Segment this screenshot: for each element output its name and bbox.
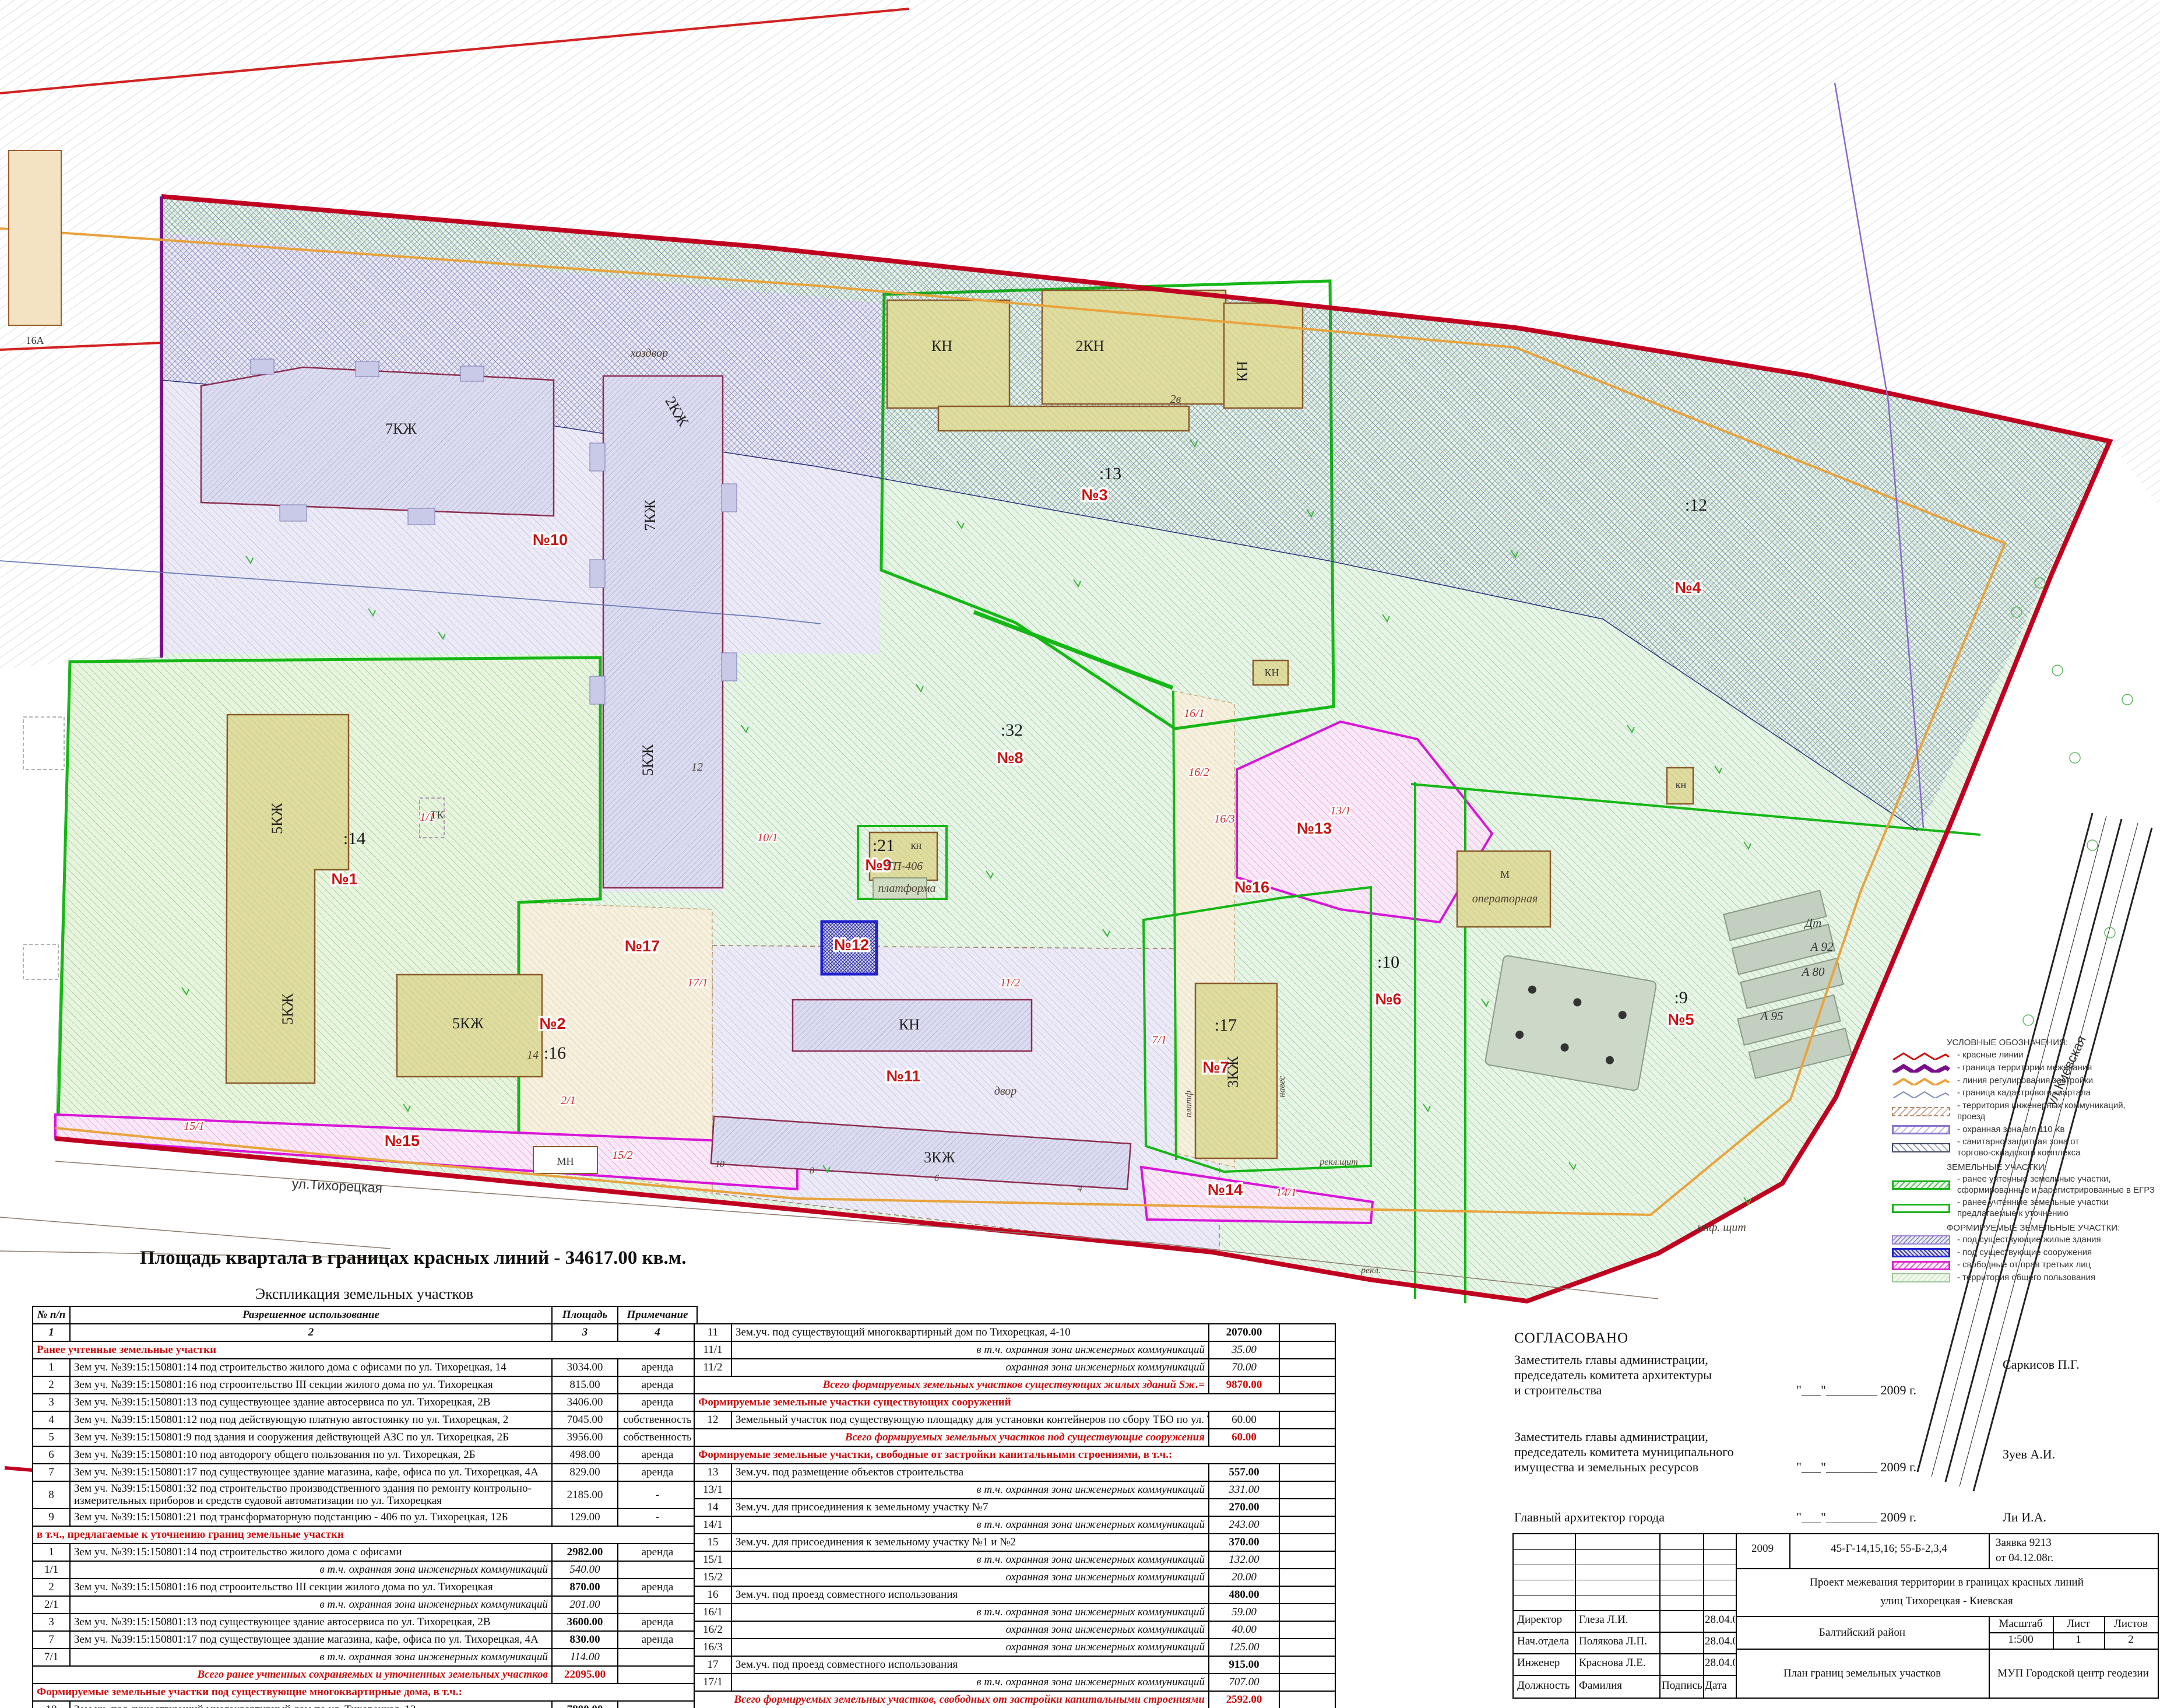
- table-cell: [1279, 1481, 1335, 1499]
- legend-item: - под существующие сооружения: [1892, 1247, 2160, 1259]
- stamp-name: Краснова Л.Е.: [1579, 1657, 1658, 1670]
- table-row: 1/1в т.ч. охранная зона инженерных комму…: [33, 1561, 697, 1579]
- legend-swatch-icon: [1892, 1143, 1950, 1152]
- table-cell: Формируемые земельные участки, свободные…: [694, 1446, 1335, 1464]
- table-cell: [1279, 1359, 1335, 1376]
- legend-label: - свободные от прав третьих лиц: [1957, 1260, 2091, 1271]
- map-label: 7КЖ: [642, 499, 659, 530]
- map-label: №3: [1081, 486, 1107, 504]
- stamp-col-label: Дата: [1705, 1679, 1735, 1692]
- map-label: 10/1: [757, 831, 778, 844]
- table-cell: [1279, 1499, 1335, 1516]
- map-label: КН: [1264, 667, 1279, 679]
- table-cell: 70.00: [1209, 1359, 1279, 1376]
- legend-label: - территория инженерных коммуникаций,про…: [1957, 1101, 2126, 1123]
- table-cell: 15: [694, 1534, 731, 1551]
- table-row: Формируемые земельные участки, свободные…: [694, 1446, 1335, 1464]
- table-cell: 480.00: [1209, 1586, 1279, 1604]
- table-cell: 9: [33, 1509, 70, 1526]
- table-cell: [618, 1561, 697, 1579]
- legend-label: - граница территории межевания: [1957, 1063, 2092, 1074]
- map-label: КН: [931, 338, 952, 354]
- table-row: 17Зем.уч. под проезд совместного использ…: [694, 1656, 1335, 1674]
- map-label: 3КЖ: [1225, 1056, 1241, 1087]
- map-label: 16А: [26, 335, 44, 346]
- map-label: №12: [834, 936, 869, 954]
- table-cell: 129.00: [552, 1509, 618, 1526]
- map-label: :14: [343, 829, 365, 848]
- table-cell: аренда: [618, 1614, 697, 1631]
- table-cell: Зем.уч. под существующий многоквартирный…: [731, 1324, 1209, 1341]
- table-cell: [1279, 1376, 1335, 1394]
- stamp-project-title: Проект межевания территории в границах к…: [1736, 1576, 2158, 1589]
- table-cell: 540.00: [552, 1561, 618, 1579]
- legend-item: - линия регулирования застройки: [1892, 1076, 2160, 1087]
- map-label: 16/3: [1214, 813, 1235, 825]
- table-cell: 331.00: [1209, 1481, 1279, 1499]
- approval-role: Главный архитектор города: [1514, 1510, 1665, 1525]
- map-label: №17: [625, 937, 660, 955]
- stamp-district: Балтийский район: [1736, 1626, 1989, 1639]
- table-row: 9Зем уч. №39:15:150801:21 под трансформа…: [33, 1509, 697, 1526]
- map-label: КН: [1234, 361, 1251, 382]
- table-cell: Формируемые земельные участки под сущест…: [33, 1684, 697, 1701]
- map-label: инф. щит: [1697, 1221, 1746, 1234]
- table-cell: 12: [694, 1411, 731, 1429]
- table-cell: 16/1: [694, 1604, 731, 1621]
- table-cell: Зем уч. №39:15:150801:12 под под действу…: [70, 1411, 552, 1429]
- table-cell: 11/1: [694, 1341, 731, 1359]
- table-cell: -: [618, 1481, 697, 1509]
- table-row: 10Зем.уч. под существующий многоквартирн…: [33, 1701, 697, 1708]
- table-cell: 557.00: [1209, 1464, 1279, 1481]
- table-row: 16Зем.уч. под проезд совместного использ…: [694, 1586, 1335, 1604]
- map-label: 5КЖ: [639, 744, 656, 775]
- table-cell: 10: [33, 1701, 70, 1708]
- stamp-org: МУП Городской центр геодезии: [1989, 1667, 2158, 1680]
- table-cell: в т.ч. охранная зона инженерных коммуник…: [731, 1516, 1209, 1534]
- table-row: Всего ранее учтенных сохраняемых и уточн…: [33, 1666, 697, 1684]
- approval-name: Саркисов П.Г.: [2003, 1357, 2080, 1372]
- legend-label: - ранее учтенные земельные участки,сформ…: [1957, 1174, 2155, 1196]
- table-cell: 243.00: [1209, 1516, 1279, 1534]
- table-cell: 870.00: [552, 1579, 618, 1596]
- stamp-date: 28.04.09: [1705, 1614, 1735, 1626]
- table-cell: 5: [33, 1429, 70, 1446]
- approval-name: Ли И.А.: [2003, 1510, 2046, 1525]
- map-label: №15: [385, 1132, 420, 1150]
- table-cell: охранная зона инженерных коммуникаций: [731, 1569, 1209, 1586]
- map-label: платф: [1184, 1091, 1194, 1117]
- table-cell: 4: [33, 1411, 70, 1429]
- map-label: ТП-406: [886, 860, 923, 873]
- table-cell: 1/1: [33, 1561, 70, 1579]
- table-cell: 17: [694, 1656, 731, 1674]
- table-row: Всего формируемых земельных участков сущ…: [694, 1376, 1335, 1394]
- table-cell: 16: [694, 1586, 731, 1604]
- approval-role: Заместитель главы администрации,: [1514, 1429, 1708, 1445]
- table-cell: 15/2: [694, 1569, 731, 1586]
- approval-role: и строительства: [1514, 1383, 1602, 1398]
- map-label: :9: [1674, 988, 1687, 1007]
- legend-swatch-icon: [1892, 1063, 1950, 1073]
- table-cell: 815.00: [552, 1376, 618, 1394]
- table-cell: [618, 1666, 697, 1684]
- quarter-area-title: Площадь квартала в границах красных лини…: [140, 1247, 723, 1269]
- table-cell: аренда: [618, 1359, 697, 1376]
- table-cell: Зем уч. №39:15:150801:17 под существующе…: [70, 1631, 552, 1649]
- table-row: 7Зем уч. №39:15:150801:17 под существующ…: [33, 1631, 697, 1649]
- legend-item: - граница кадастрового квартала: [1892, 1088, 2160, 1099]
- table-cell: 9870.00: [1209, 1376, 1279, 1394]
- table-cell: [618, 1596, 697, 1614]
- stamp-doc-title: План границ земельных участков: [1736, 1667, 1989, 1680]
- table-cell: Зем.уч. под существующий многоквартирный…: [70, 1701, 552, 1708]
- table-row: 17/1в т.ч. охранная зона инженерных комм…: [694, 1674, 1335, 1691]
- legend-label: - территория общего пользования: [1957, 1273, 2095, 1284]
- table-cell: Зем уч. №39:15:150801:10 под автодорогу …: [70, 1446, 552, 1464]
- legend-swatch-icon: [1892, 1125, 1950, 1134]
- map-label: 15/2: [612, 1149, 633, 1162]
- table-cell: 2185.00: [552, 1481, 618, 1509]
- map-label: :17: [1215, 1015, 1237, 1035]
- stamp-scale: 1:500: [1989, 1633, 2053, 1646]
- map-label: 4: [1078, 1184, 1082, 1194]
- table-row: 12Земельный участок под существующую пло…: [694, 1411, 1335, 1429]
- map-label: №14: [1208, 1181, 1243, 1199]
- map-label: №11: [886, 1067, 921, 1085]
- table-cell: 7/1: [33, 1649, 70, 1666]
- table-row: Формируемые земельные участки существующ…: [694, 1394, 1335, 1411]
- approval-title: СОГЛАСОВАНО: [1514, 1330, 1628, 1347]
- table-row: 3Зем уч. №39:15:150801:13 под существующ…: [33, 1394, 697, 1411]
- map-label: рекл.: [1360, 1266, 1381, 1275]
- stamp-sheet: 1: [2053, 1633, 2104, 1646]
- stamp-year: 2009: [1737, 1542, 1788, 1555]
- approval-date-blank: "___"________ 2009 г.: [1796, 1460, 1916, 1475]
- table-row: Всего формируемых земельных участков, св…: [694, 1691, 1335, 1708]
- map-label: хоздвор: [630, 347, 668, 360]
- table-row: 1Зем уч. №39:15:150801:14 под строительс…: [33, 1359, 697, 1376]
- legend-label: - ранее учтенные земельные участкипредла…: [1957, 1197, 2109, 1220]
- legend-swatch-icon: [1892, 1273, 1950, 1282]
- legend-section-title: ФОРМИРУЕМЫЕ ЗЕМЕЛЬНЫЕ УЧАСТКИ:: [1947, 1223, 2160, 1233]
- approval-name: Зуев А.И.: [2003, 1447, 2055, 1462]
- cadastral-plan-page: :14:16:13:32:12:17:9:10:21кн№1№2№3№4№5№6…: [0, 0, 2160, 1708]
- table-cell: Формируемые земельные участки существующ…: [694, 1394, 1335, 1411]
- table-cell: Зем.уч. для присоединения к земельному у…: [731, 1534, 1209, 1551]
- table-cell: Зем уч. №39:15:150801:14 под строительст…: [70, 1359, 552, 1376]
- approval-date-blank: "___"________ 2009 г.: [1796, 1383, 1916, 1398]
- table-cell: [618, 1701, 697, 1708]
- table-row: 2/1в т.ч. охранная зона инженерных комму…: [33, 1596, 697, 1614]
- stamp-role: Нач.отдела: [1517, 1635, 1573, 1648]
- title-block: 2009 45-Г-14,15,16; 55-Б-2,3,4 Заявка 92…: [1512, 1533, 2159, 1699]
- legend-item: - территория инженерных коммуникаций,про…: [1892, 1101, 2160, 1123]
- table-cell: аренда: [618, 1394, 697, 1411]
- table-cell: [1279, 1621, 1335, 1639]
- legend-swatch-icon: [1892, 1261, 1950, 1270]
- table-cell: [1279, 1341, 1335, 1359]
- legend-swatch-icon: [1892, 1248, 1950, 1257]
- stamp-scale-label: Масштаб: [1989, 1618, 2053, 1630]
- legend-item: - граница территории межевания: [1892, 1063, 2160, 1074]
- table-cell: 3956.00: [552, 1429, 618, 1446]
- table-cell: 2: [33, 1376, 70, 1394]
- map-label: 16/1: [1184, 707, 1205, 720]
- table-cell: 11: [694, 1324, 731, 1341]
- table-cell: 4: [618, 1324, 697, 1341]
- approval-date-blank: "___"________ 2009 г.: [1796, 1510, 1916, 1525]
- table-cell: Зем.уч. под размещение объектов строител…: [731, 1464, 1209, 1481]
- stamp-sheets: 2: [2104, 1633, 2158, 1646]
- legend-item: - охранная зона в/л 110 Кв: [1892, 1124, 2160, 1136]
- map-label: №4: [1674, 579, 1701, 596]
- table-row: 16/3охранная зона инженерных коммуникаци…: [694, 1639, 1335, 1656]
- map-label: кн: [1676, 779, 1687, 790]
- stamp-col-label: Подпись: [1662, 1679, 1702, 1692]
- stamp-project-subtitle: улиц Тихорецкая - Киевская: [1736, 1595, 2158, 1608]
- table-row: 11/2охранная зона инженерных коммуникаци…: [694, 1359, 1335, 1376]
- map-label: 16/2: [1188, 766, 1209, 779]
- map-label: ТК: [430, 809, 444, 821]
- table-cell: Земельный участок под существующую площа…: [731, 1411, 1209, 1429]
- legend-section-title: ЗЕМЕЛЬНЫЕ УЧАСТКИ:: [1947, 1162, 2160, 1172]
- table-cell: 16/2: [694, 1621, 731, 1639]
- table-row: 1Зем уч. №39:15:150801:14 под строительс…: [33, 1544, 697, 1561]
- stamp-sheets-label: Листов: [2104, 1618, 2158, 1630]
- table-cell: [1279, 1691, 1335, 1708]
- map-label: №10: [533, 531, 568, 549]
- stamp-role: Директор: [1517, 1614, 1573, 1626]
- legend-label: - линия регулирования застройки: [1957, 1076, 2093, 1087]
- table-cell: [1279, 1639, 1335, 1656]
- table-cell: в т.ч. охранная зона инженерных коммуник…: [731, 1674, 1209, 1691]
- table-cell: 60.00: [1209, 1411, 1279, 1429]
- table-row: 2Зем уч. №39:15:150801:16 под строоитель…: [33, 1579, 697, 1596]
- table-cell: 3600.00: [552, 1614, 618, 1631]
- approval-block: СОГЛАСОВАНО Заместитель главы администра…: [1514, 1330, 2160, 1528]
- map-label: рекл.щит: [1319, 1157, 1358, 1167]
- table-cell: охранная зона инженерных коммуникаций: [731, 1639, 1209, 1656]
- table-cell: Зем уч. №39:15:150801:16 под строоительс…: [70, 1579, 552, 1596]
- table-cell: 3406.00: [552, 1394, 618, 1411]
- table-cell: 125.00: [1209, 1639, 1279, 1656]
- table-row: Формируемые земельные участки под сущест…: [33, 1684, 697, 1701]
- table-cell: Зем уч. №39:15:150801:13 под существующе…: [70, 1614, 552, 1631]
- map-label: 11/2: [1000, 976, 1020, 989]
- table-row: 11/1в т.ч. охранная зона инженерных комм…: [694, 1341, 1335, 1359]
- table-cell: 2/1: [33, 1596, 70, 1614]
- table-row: 2Зем уч. №39:15:150801:16 под строоитель…: [33, 1376, 697, 1394]
- table-cell: Зем уч. №39:15:150801:13 под существующе…: [70, 1394, 552, 1411]
- table-cell: в т.ч. охранная зона инженерных коммуник…: [70, 1649, 552, 1666]
- table-cell: Площадь: [552, 1306, 618, 1324]
- table-cell: 1: [33, 1544, 70, 1561]
- map-label: А 92: [1809, 940, 1834, 954]
- legend-item: - под существующие жилые здания: [1892, 1235, 2160, 1246]
- explication-table: 11Зем.уч. под существующий многоквартирн…: [694, 1323, 1336, 1708]
- map-label: №5: [1668, 1011, 1694, 1028]
- table-row: 11Зем.уч. под существующий многоквартирн…: [694, 1324, 1335, 1341]
- map-label: платформа: [878, 882, 935, 895]
- stamp-col-label: Должность: [1517, 1679, 1573, 1692]
- map-label: №13: [1297, 820, 1332, 837]
- table-cell: 707.00: [1209, 1674, 1279, 1691]
- map-label: 3КЖ: [924, 1149, 955, 1166]
- table-row: 16/1в т.ч. охранная зона инженерных комм…: [694, 1604, 1335, 1621]
- table-cell: 7: [33, 1464, 70, 1481]
- table-cell: 59.00: [1209, 1604, 1279, 1621]
- table-cell: Зем.уч. под проезд совместного использов…: [731, 1656, 1209, 1674]
- map-label: №1: [331, 870, 357, 888]
- table-cell: аренда: [618, 1376, 697, 1394]
- map-label: 5КЖ: [279, 993, 296, 1024]
- table-row: 15/2охранная зона инженерных коммуникаци…: [694, 1569, 1335, 1586]
- table-cell: 7: [33, 1631, 70, 1649]
- table-cell: 915.00: [1209, 1656, 1279, 1674]
- table-cell: 20.00: [1209, 1569, 1279, 1586]
- table-cell: [1279, 1516, 1335, 1534]
- map-label: 2в: [1170, 393, 1181, 406]
- table-cell: 114.00: [552, 1649, 618, 1666]
- table-cell: [1279, 1674, 1335, 1691]
- stamp-code: 45-Г-14,15,16; 55-Б-2,3,4: [1790, 1542, 1987, 1555]
- table-cell: 22095.00: [552, 1666, 618, 1684]
- explication-table: № п/пРазрешенное использованиеПлощадьПри…: [32, 1306, 698, 1708]
- map-label: 5КЖ: [452, 1015, 484, 1032]
- table-cell: 60.00: [1209, 1429, 1279, 1446]
- table-cell: 7045.00: [552, 1411, 618, 1429]
- table-cell: 830.00: [552, 1631, 618, 1649]
- map-label: 14/1: [1276, 1186, 1297, 1199]
- table-cell: собственность: [618, 1411, 697, 1429]
- legend-swatch-icon: [1892, 1180, 1950, 1190]
- table-cell: [1279, 1569, 1335, 1586]
- table-cell: аренда: [618, 1579, 697, 1596]
- table-cell: 132.00: [1209, 1551, 1279, 1569]
- legend-swatch-icon: [1892, 1076, 1950, 1085]
- table-cell: Всего формируемых земельных участков под…: [694, 1429, 1209, 1446]
- table-cell: охранная зона инженерных коммуникаций: [731, 1359, 1209, 1376]
- table-row: 6Зем уч. №39:15:150801:10 под автодорогу…: [33, 1446, 697, 1464]
- table-cell: 2: [33, 1579, 70, 1596]
- map-label: навес: [1277, 1076, 1287, 1098]
- table-cell: Разрешенное использование: [70, 1306, 552, 1324]
- legend-label: - охранная зона в/л 110 Кв: [1957, 1124, 2064, 1136]
- table-cell: 3: [552, 1324, 618, 1341]
- table-cell: [618, 1649, 697, 1666]
- table-row: 13/1в т.ч. охранная зона инженерных комм…: [694, 1481, 1335, 1499]
- map-label: 10: [715, 1159, 724, 1169]
- table-cell: 7800.00: [552, 1701, 618, 1708]
- map-label: 7/1: [1152, 1034, 1167, 1046]
- table-cell: в т.ч. охранная зона инженерных коммуник…: [731, 1604, 1209, 1621]
- table-cell: [1279, 1534, 1335, 1551]
- legend-item: - свободные от прав третьих лиц: [1892, 1260, 2160, 1271]
- table-cell: -: [618, 1509, 697, 1526]
- legend-item: - красные линии: [1892, 1050, 2160, 1061]
- legend-label: - санитарно-защитная зона отторгово-скла…: [1957, 1137, 2081, 1159]
- table-cell: Зем уч. №39:15:150801:14 под строительст…: [70, 1544, 552, 1561]
- map-label: кн: [911, 839, 922, 851]
- table-cell: Всего формируемых земельных участков сущ…: [694, 1376, 1209, 1394]
- table-cell: 201.00: [552, 1596, 618, 1614]
- table-cell: Зем уч. №39:15:150801:16 под строоительс…: [70, 1376, 552, 1394]
- table-cell: [1279, 1411, 1335, 1429]
- table-row: 7/1в т.ч. охранная зона инженерных комму…: [33, 1649, 697, 1666]
- table-cell: Зем уч. №39:15:150801:21 под трансформат…: [70, 1509, 552, 1526]
- table-cell: 13/1: [694, 1481, 731, 1499]
- table-cell: 1: [33, 1359, 70, 1376]
- map-label: №16: [1234, 878, 1269, 896]
- table-cell: 2592.00: [1209, 1691, 1279, 1708]
- legend-item: - ранее учтенные земельные участки,сформ…: [1892, 1174, 2160, 1196]
- table-cell: 14: [694, 1499, 731, 1516]
- table-cell: 40.00: [1209, 1621, 1279, 1639]
- approval-role: председатель комитета архитектуры: [1514, 1368, 1712, 1383]
- table-cell: 2070.00: [1209, 1324, 1279, 1341]
- table-row: 15/1в т.ч. охранная зона инженерных комм…: [694, 1551, 1335, 1569]
- table-cell: Всего ранее учтенных сохраняемых и уточн…: [33, 1666, 552, 1684]
- table-cell: Зем уч. №39:15:150801:9 под здания и соо…: [70, 1429, 552, 1446]
- legend-swatch-icon: [1892, 1204, 1950, 1213]
- map-label: №2: [539, 1015, 565, 1032]
- table-cell: 14/1: [694, 1516, 731, 1534]
- table-cell: в т.ч. охранная зона инженерных коммуник…: [731, 1551, 1209, 1569]
- table-cell: Всего формируемых земельных участков, св…: [694, 1691, 1209, 1708]
- table-cell: 17/1: [694, 1674, 731, 1691]
- table-cell: 3: [33, 1614, 70, 1631]
- table-cell: аренда: [618, 1446, 697, 1464]
- explication-title: Экспликация земельных участков: [32, 1285, 696, 1303]
- legend-swatch-icon: [1892, 1107, 1950, 1116]
- table-cell: 15/1: [694, 1551, 731, 1569]
- map-label: МН: [557, 1155, 574, 1167]
- map-label: №6: [1375, 990, 1401, 1008]
- stamp-date: 28.04.09: [1705, 1635, 1735, 1648]
- map-label: :16: [544, 1043, 566, 1063]
- table-cell: [1279, 1604, 1335, 1621]
- map-label: 8: [810, 1166, 814, 1176]
- legend-item: - ранее учтенные земельные участкипредла…: [1892, 1197, 2160, 1220]
- map-label: 17/1: [687, 976, 708, 989]
- stamp-request-date: от 04.12.08г.: [1996, 1552, 2153, 1565]
- table-cell: в т.ч. охранная зона инженерных коммуник…: [731, 1341, 1209, 1359]
- stamp-name: Глеза Л.И.: [1579, 1614, 1658, 1626]
- table-cell: 270.00: [1209, 1499, 1279, 1516]
- map-label: :12: [1685, 495, 1707, 515]
- table-cell: Зем.уч. под проезд совместного использов…: [731, 1586, 1209, 1604]
- map-label: КН: [899, 1016, 920, 1033]
- legend-title: УСЛОВНЫЕ ОБОЗНАЧЕНИЯ:: [1947, 1038, 2160, 1048]
- table-row: 14Зем.уч. для присоединения к земельному…: [694, 1499, 1335, 1516]
- table-cell: в т.ч. охранная зона инженерных коммуник…: [731, 1481, 1209, 1499]
- stamp-role: Инженер: [1517, 1657, 1573, 1670]
- table-row: Всего формируемых земельных участков под…: [694, 1429, 1335, 1446]
- map-label: :21: [873, 836, 895, 855]
- table-cell: 13: [694, 1464, 731, 1481]
- map-label: :32: [1001, 721, 1023, 740]
- table-cell: 3: [33, 1394, 70, 1411]
- legend-label: - под существующие жилые здания: [1957, 1235, 2101, 1246]
- table-cell: [1279, 1429, 1335, 1446]
- legend-label: - под существующие сооружения: [1957, 1247, 2092, 1259]
- table-cell: [1279, 1324, 1335, 1341]
- table-cell: [1279, 1656, 1335, 1674]
- map-label: 2КН: [1075, 338, 1104, 354]
- table-cell: 35.00: [1209, 1341, 1279, 1359]
